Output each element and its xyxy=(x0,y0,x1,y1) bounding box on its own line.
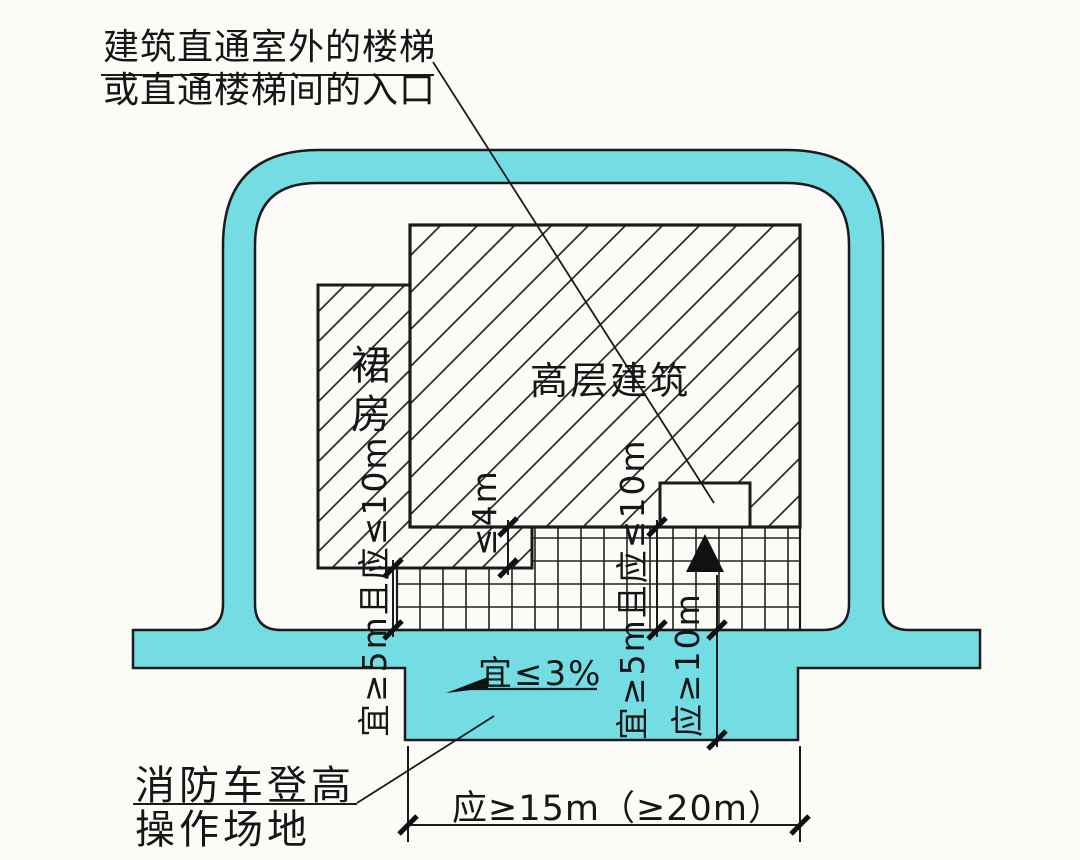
fire-access-diagram: 建筑直通室外的楼梯 或直通楼梯间的入口 裙房 高层建筑 宜≥5m且应≤10m ≤… xyxy=(0,0,1080,860)
stair-entrance-note: 建筑直通室外的楼梯 或直通楼梯间的入口 xyxy=(103,26,436,112)
diagram-canvas xyxy=(0,0,1080,860)
slope-label: 宜≤3% xyxy=(478,646,602,695)
dim-site-length-label: 应≥15m（≥20m） xyxy=(452,780,752,831)
fire-truck-site-note: 消防车登高 操作场地 xyxy=(135,764,355,852)
highrise-label: 高层建筑 xyxy=(530,350,690,405)
fire-truck-site-note-line2: 操作场地 xyxy=(135,808,355,852)
fire-truck-site-note-line1: 消防车登高 xyxy=(135,764,355,808)
podium-label: 裙房 xyxy=(338,344,396,442)
dim-site-depth-label: 应≥10m xyxy=(671,592,705,737)
stair-entrance-note-line1: 建筑直通室外的楼梯 xyxy=(103,26,436,69)
dim-podium-depth-label: ≤4m xyxy=(468,469,502,556)
dim-mid-chain-label: 宜≥5m且应≤10m xyxy=(616,438,650,740)
stair-entrance-note-line2: 或直通楼梯间的入口 xyxy=(103,69,436,112)
dim-left-chain-label: 宜≥5m且应≤10m xyxy=(358,435,392,737)
